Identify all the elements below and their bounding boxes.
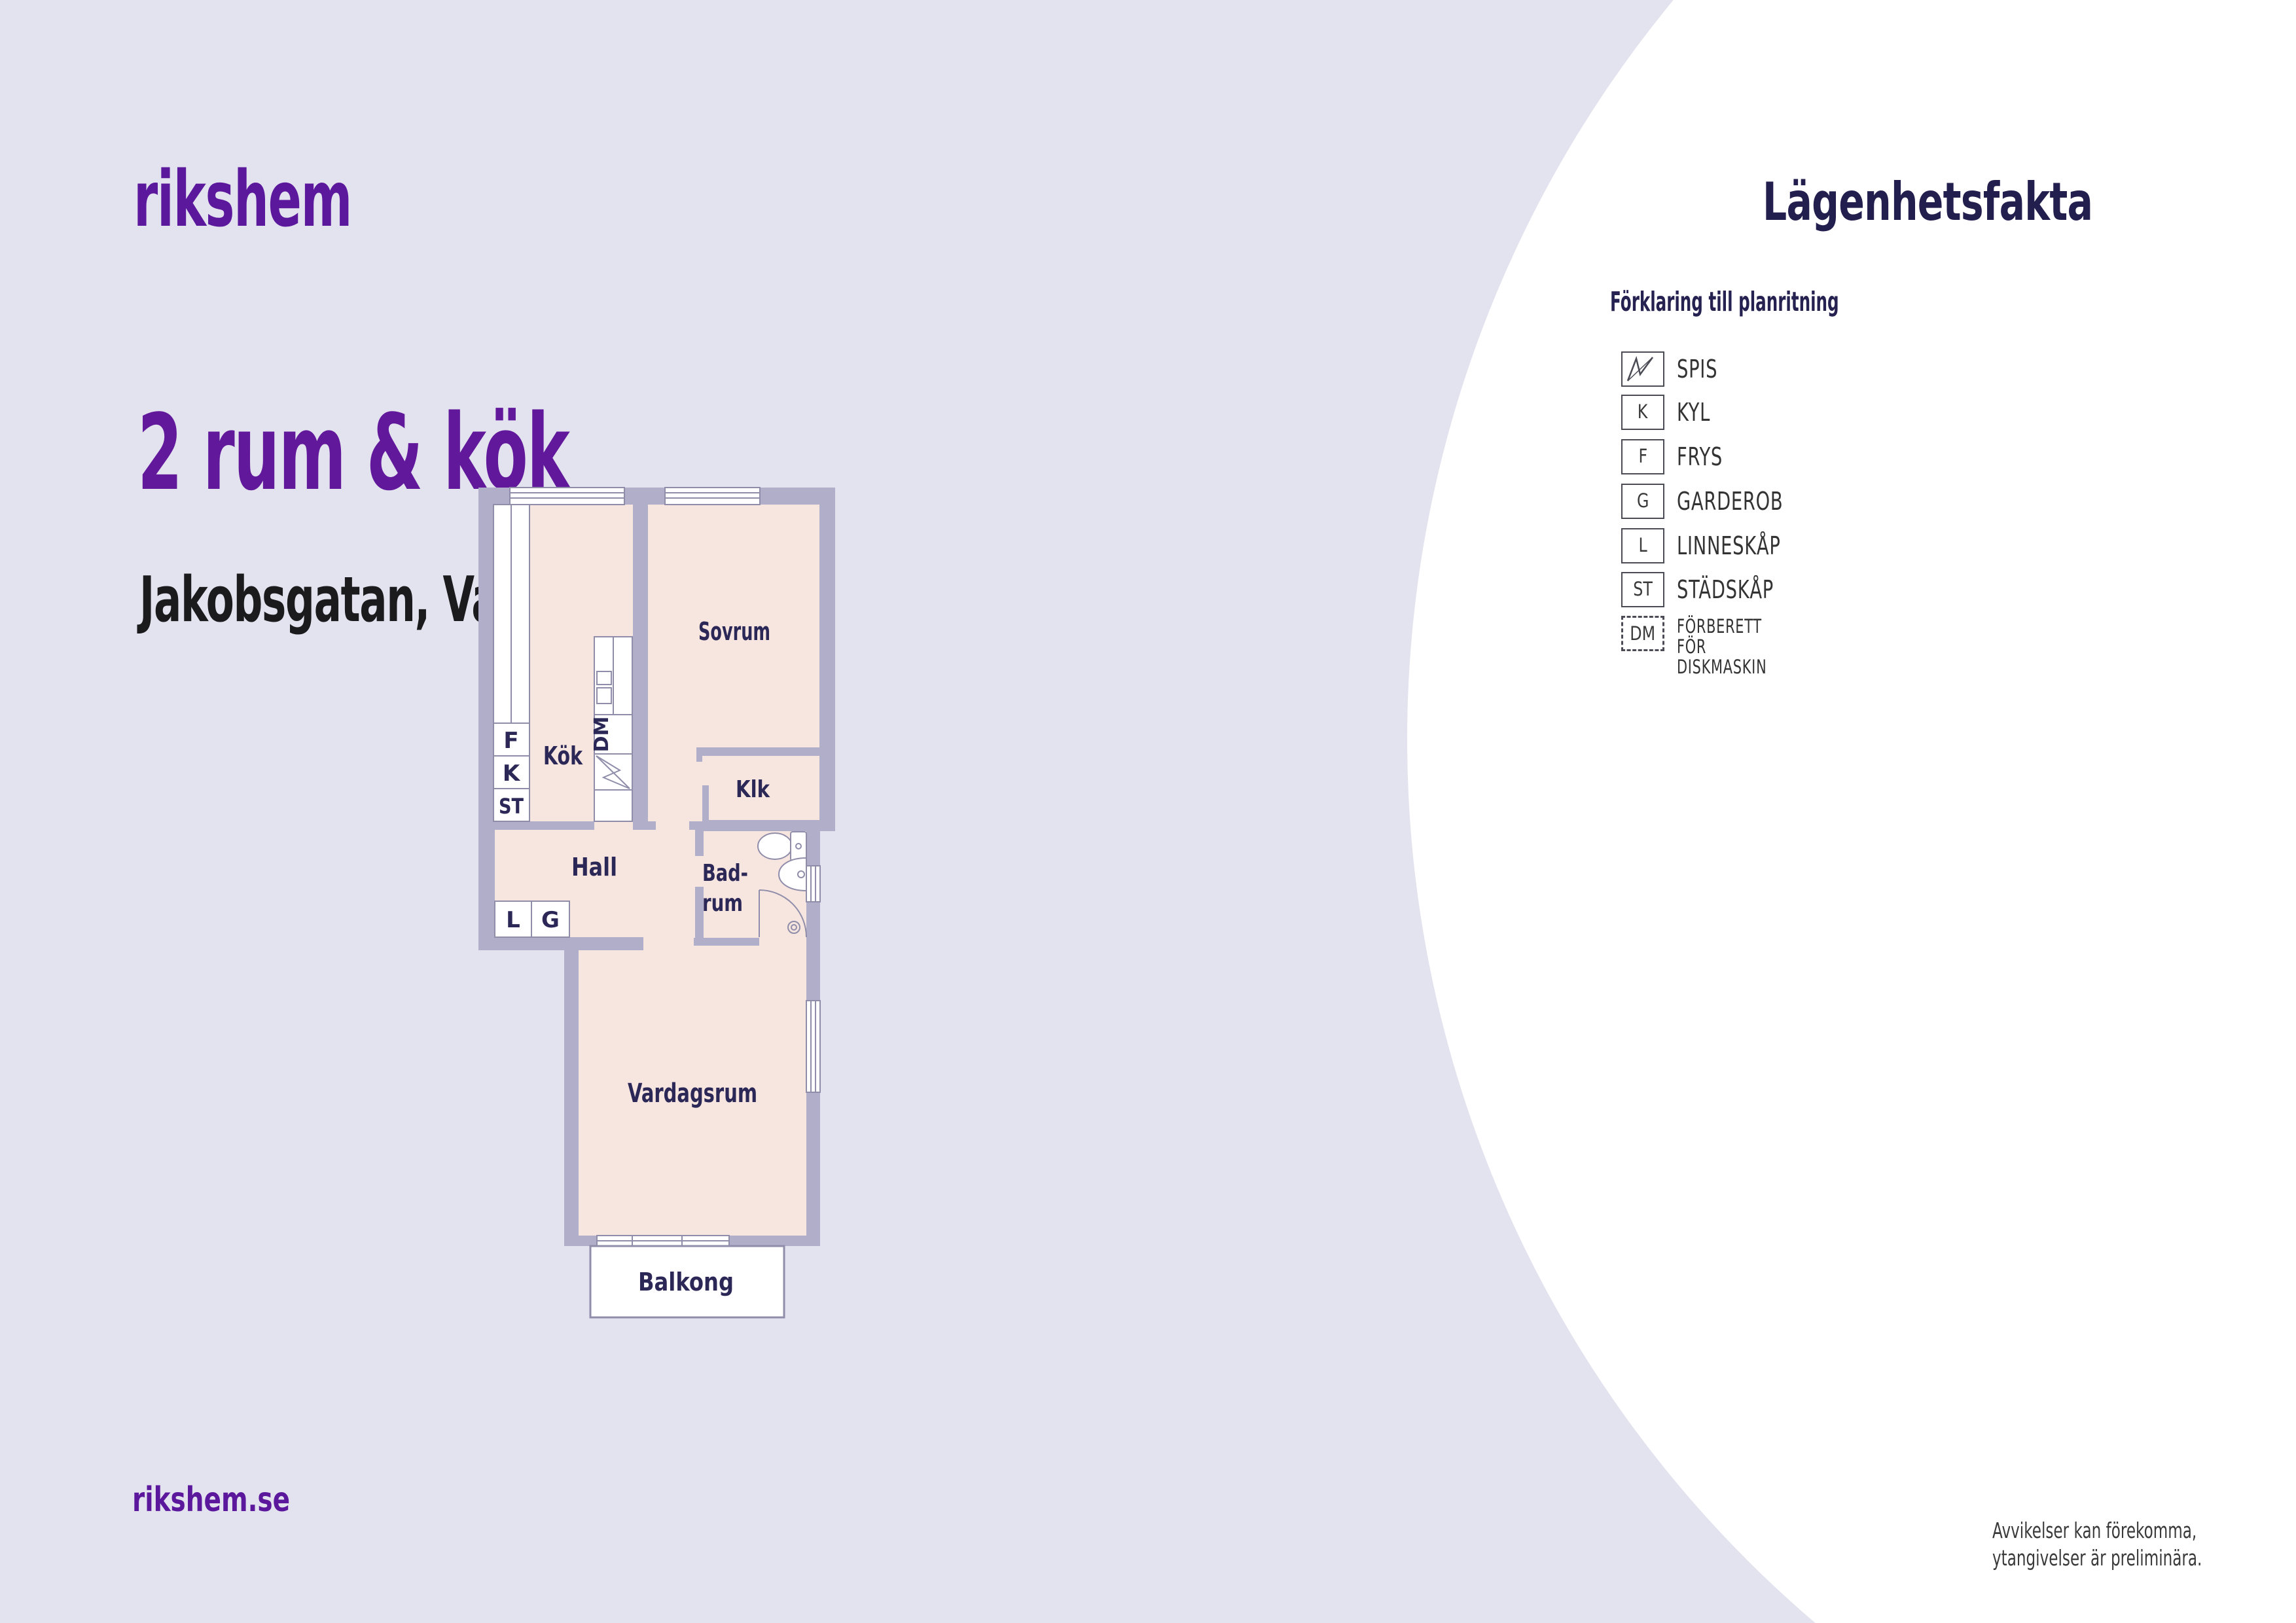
legend-symbol: F [1638, 440, 1647, 473]
legend-symbol: L [1638, 529, 1647, 562]
website-link[interactable]: rikshem.se [132, 1480, 290, 1520]
marker-st: ST [499, 794, 524, 819]
spis-icon [1621, 351, 1664, 387]
marker-l: L [506, 907, 520, 933]
toilet-icon [758, 833, 792, 859]
label-sovrum: Sovrum [698, 617, 770, 646]
marker-dm: DM [590, 717, 613, 753]
label-kok: Kök [543, 741, 583, 770]
marker-k: K [503, 760, 521, 787]
floorplan: Sovrum Kök Klk Hall Bad- rum Vardagsrum … [468, 474, 900, 1456]
legend-symbol: G [1637, 485, 1649, 517]
legend-label: FRYS [1677, 439, 1723, 474]
legend-label: GARDEROB [1677, 484, 1783, 519]
label-klk: Klk [736, 776, 770, 803]
page: rikshem 2 rum & kök Jakobsgatan, Västerå… [0, 0, 2296, 1623]
legend-symbol: ST [1633, 573, 1653, 605]
marker-g: G [541, 907, 560, 933]
facts-title: Lägenhetsfakta [1763, 171, 2092, 232]
legend-title: Förklaring till planritning [1610, 286, 1839, 317]
legend-symbol: DM [1630, 618, 1656, 650]
label-badrum-2: rum [702, 890, 743, 917]
white-circle-background [1407, 0, 2296, 1623]
label-badrum-1: Bad- [702, 860, 748, 887]
label-vardagsrum: Vardagsrum [628, 1079, 757, 1109]
legend-symbol: K [1638, 396, 1648, 428]
label-hall: Hall [571, 853, 617, 882]
label-balkong: Balkong [638, 1268, 734, 1296]
floorplan-rooms-fill [495, 505, 819, 1236]
legend-label: LINNESKÅP [1677, 528, 1781, 563]
legend-label: KYL [1677, 395, 1710, 430]
legend-label: SPIS [1677, 351, 1717, 387]
rikshem-logo: rikshem [134, 154, 351, 244]
legend-label: FÖRBERETT FÖRDISKMASKIN [1677, 616, 1767, 677]
marker-f: F [503, 728, 518, 754]
disclaimer: Avvikelser kan förekomma,ytangivelser är… [1992, 1517, 2202, 1572]
legend-label: STÄDSKÅP [1677, 572, 1774, 607]
